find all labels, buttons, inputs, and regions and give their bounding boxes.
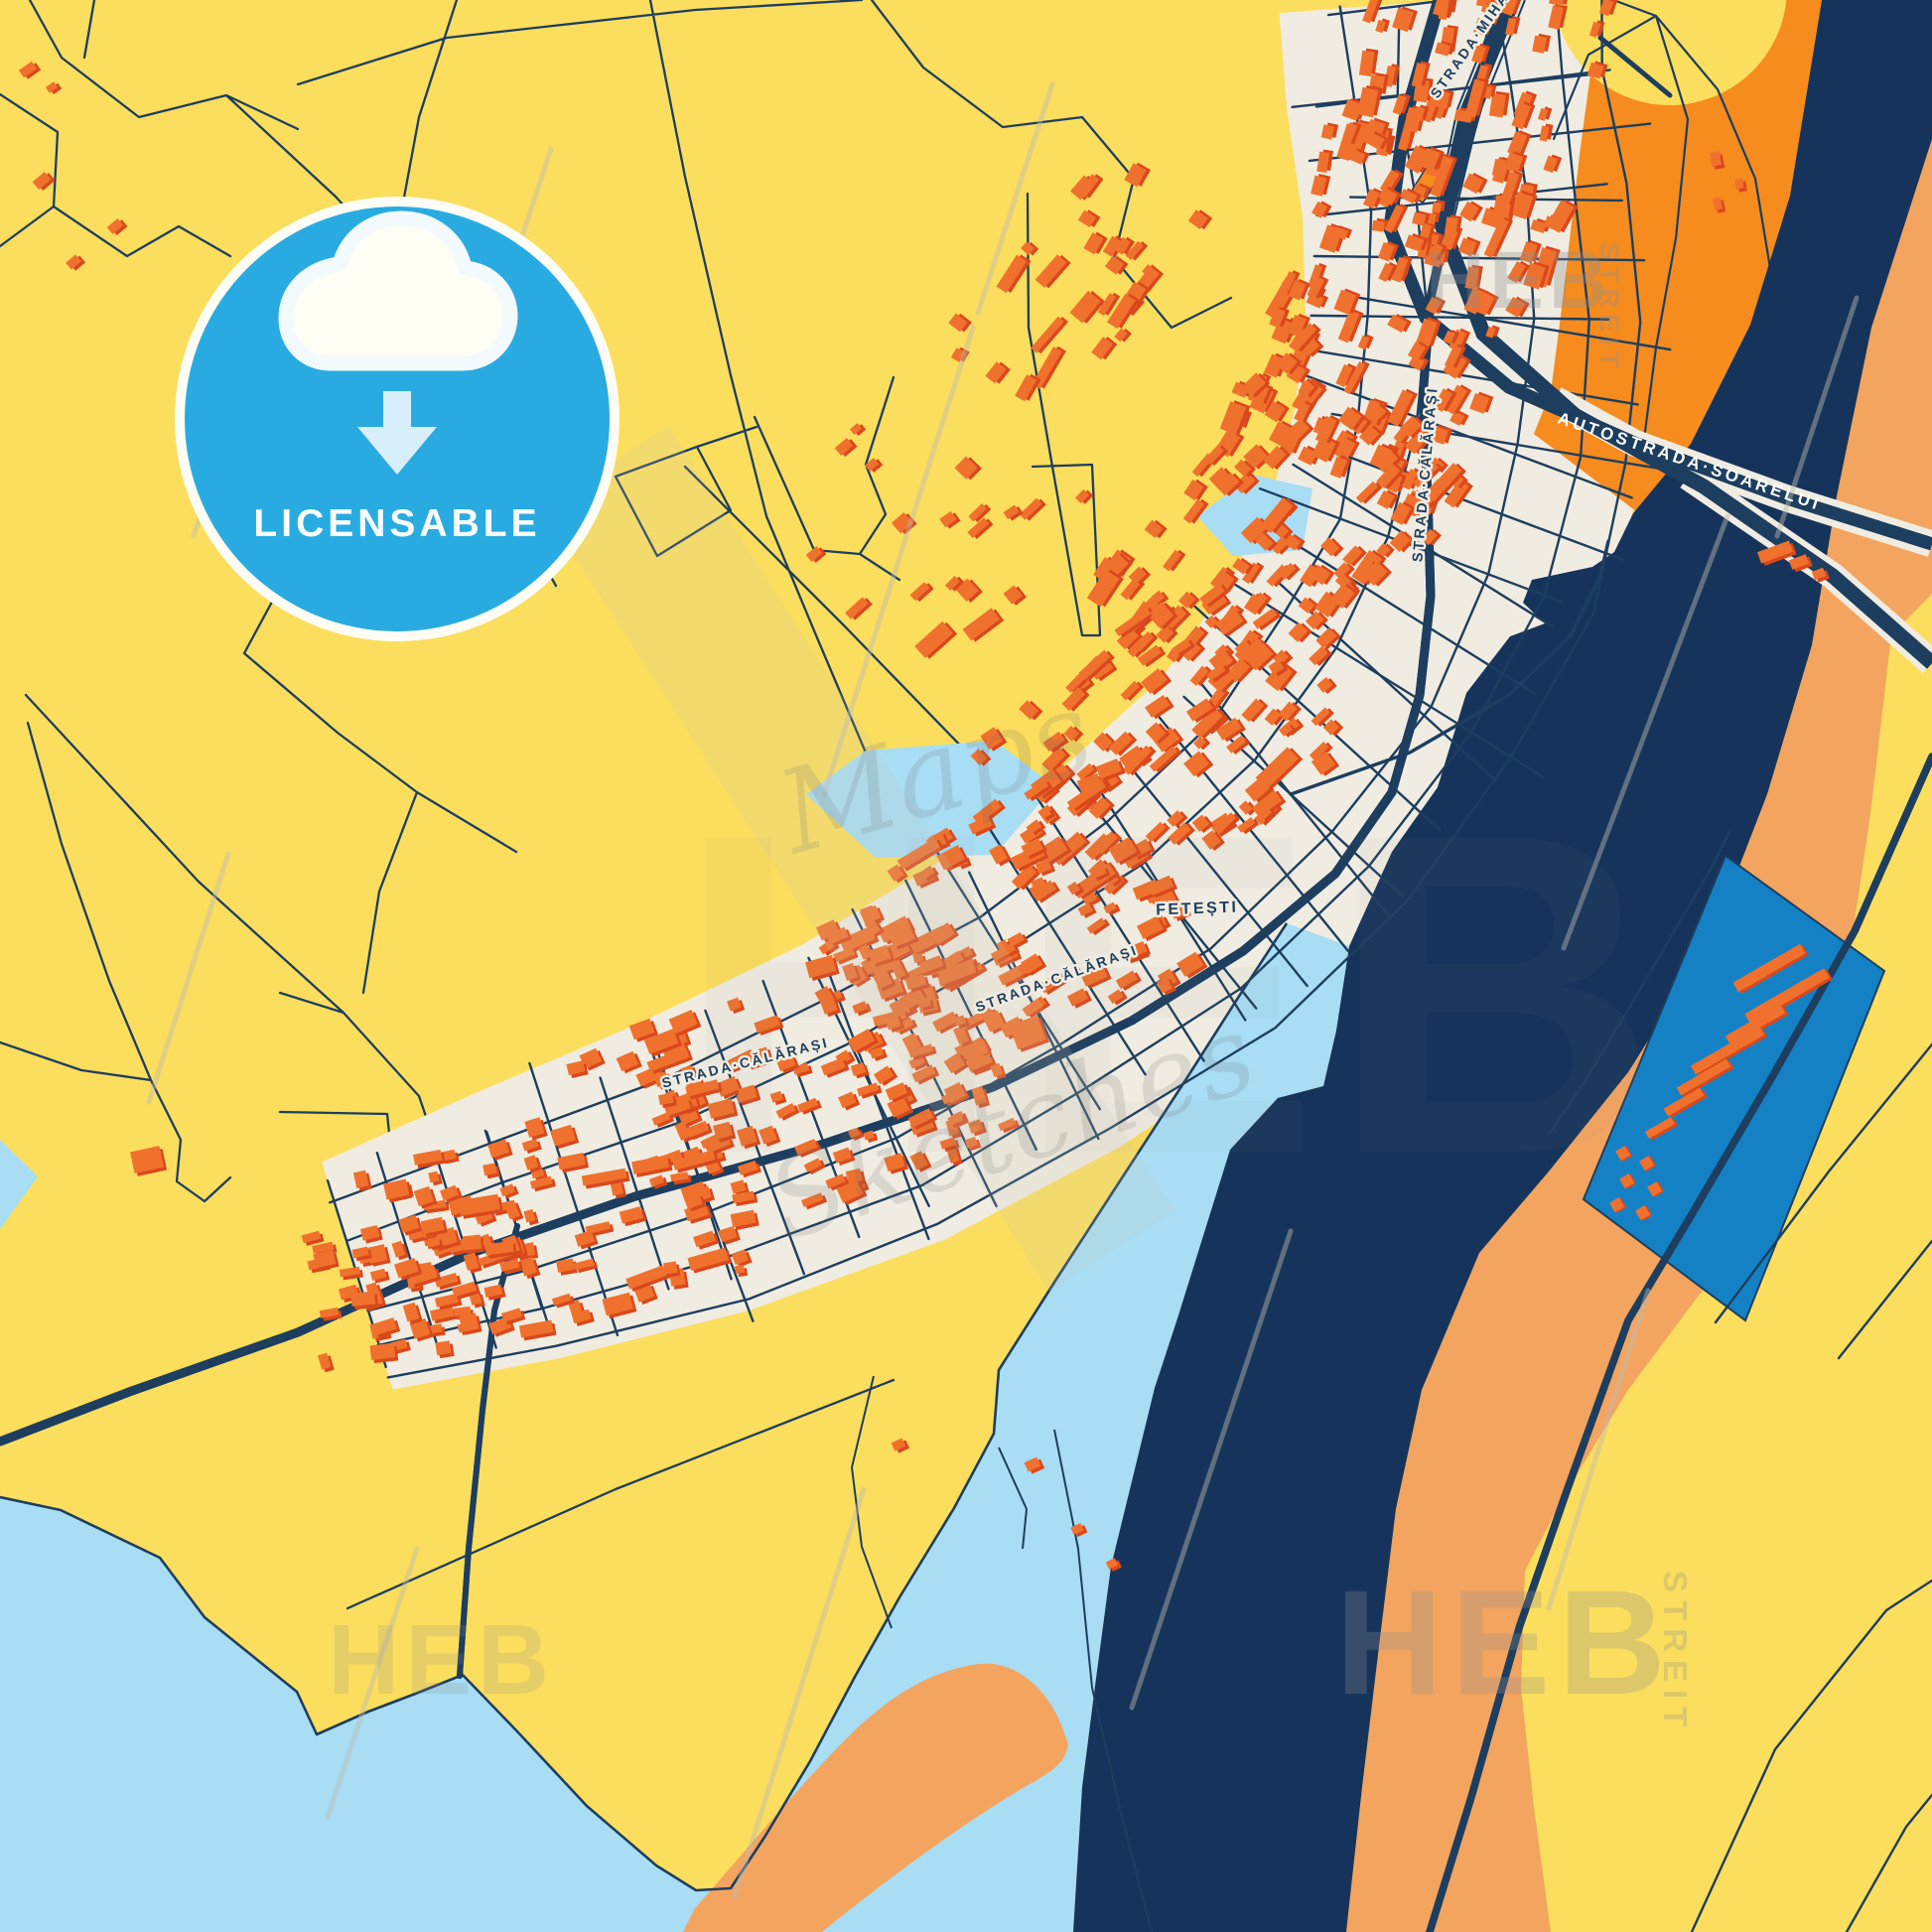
- licensable-badge[interactable]: LICENSABLE: [175, 197, 620, 641]
- building: [459, 1312, 482, 1335]
- label-city-fetesti: FETEȘTI: [1156, 899, 1239, 919]
- watermark-heb-topright: HEB: [1426, 235, 1612, 326]
- map-canvas: HEB HEB STREIT HEB STREIT HEB Maps Sketc…: [0, 0, 1932, 1932]
- building: [350, 1291, 378, 1310]
- building: [369, 1342, 398, 1363]
- watermark-heb-bottomleft: HEB: [328, 1604, 555, 1716]
- watermark-heb-bottomright: HEB: [1335, 1559, 1674, 1725]
- watermark-streit-topright: STREIT: [1594, 242, 1624, 373]
- badge-label: LICENSABLE: [253, 502, 540, 545]
- watermark-streit-bottomright: STREIT: [1657, 1571, 1694, 1734]
- building: [1445, 214, 1462, 235]
- map-poster: HEB HEB STREIT HEB STREIT HEB Maps Sketc…: [0, 0, 1932, 1932]
